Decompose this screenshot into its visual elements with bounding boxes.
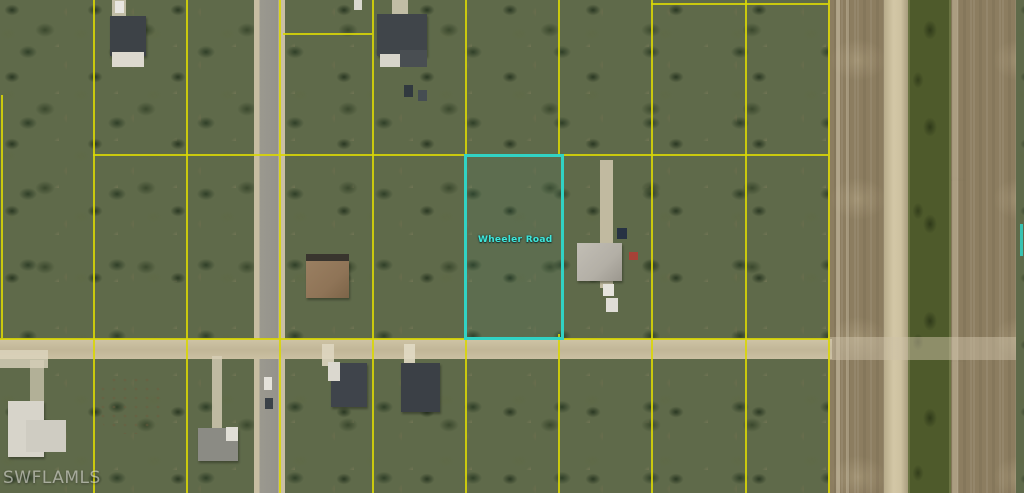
vehicle bbox=[606, 298, 618, 312]
aerial-parcel-photo: Wheeler Road SWFLAMLS bbox=[0, 0, 1024, 493]
vehicle bbox=[265, 398, 273, 409]
mulch-pile bbox=[98, 376, 162, 434]
vehicle bbox=[115, 1, 124, 13]
parcel-line-horizontal bbox=[651, 3, 828, 5]
parcel-line-vertical bbox=[372, 0, 374, 493]
field-east-edge-line bbox=[952, 0, 958, 493]
house-roof bbox=[306, 261, 349, 298]
vehicle bbox=[603, 284, 614, 296]
house-roof-section bbox=[380, 54, 400, 67]
parcel-line-vertical bbox=[465, 0, 467, 155]
mls-watermark: SWFLAMLS bbox=[3, 468, 101, 488]
parcel-line-vertical bbox=[558, 0, 560, 155]
house-roof-section bbox=[226, 427, 238, 441]
parcel-line-vertical bbox=[1, 95, 3, 338]
sand-clearing bbox=[655, 55, 745, 135]
driveway bbox=[392, 0, 408, 14]
house-roof-section bbox=[112, 52, 144, 67]
vehicle bbox=[354, 0, 362, 10]
parcel-line-horizontal bbox=[93, 154, 828, 156]
house-roof-section bbox=[400, 50, 427, 67]
driveway bbox=[30, 360, 44, 402]
parcel-line-horizontal bbox=[283, 33, 372, 35]
sand-clearing bbox=[830, 0, 885, 130]
house-roof-section bbox=[328, 362, 340, 381]
house-roof-section bbox=[26, 420, 66, 452]
sand-clearing bbox=[205, 0, 260, 35]
vehicle bbox=[404, 85, 413, 97]
driveway bbox=[404, 344, 415, 364]
parcel-line-vertical bbox=[93, 0, 95, 493]
road-name-label: Wheeler Road bbox=[478, 235, 553, 245]
levee-strip bbox=[884, 0, 908, 493]
road-horizontal bbox=[0, 339, 832, 359]
parcel-line-horizontal bbox=[0, 338, 829, 340]
sand-clearing bbox=[690, 345, 830, 493]
parcel-line-vertical bbox=[558, 334, 560, 493]
parcel-line-vertical bbox=[651, 0, 653, 493]
vehicle bbox=[617, 228, 627, 239]
road-horizontal-fade bbox=[828, 337, 1016, 360]
vehicle bbox=[629, 252, 638, 260]
vehicle bbox=[418, 90, 427, 101]
house-roof bbox=[401, 363, 440, 412]
highlighted-parcel-boundary bbox=[464, 154, 564, 340]
house-roof bbox=[110, 16, 146, 56]
parcel-line-vertical bbox=[465, 334, 467, 493]
highlight-fragment-east bbox=[1020, 224, 1023, 256]
house-roof bbox=[577, 243, 622, 281]
parcel-line-vertical bbox=[745, 0, 747, 493]
scene bbox=[0, 0, 1024, 493]
parcel-line-vertical bbox=[186, 0, 188, 493]
parcel-line-vertical bbox=[828, 0, 830, 493]
driveway bbox=[212, 356, 222, 428]
parcel-line-vertical bbox=[279, 0, 281, 493]
vehicle bbox=[264, 377, 272, 390]
canal bbox=[908, 0, 951, 493]
